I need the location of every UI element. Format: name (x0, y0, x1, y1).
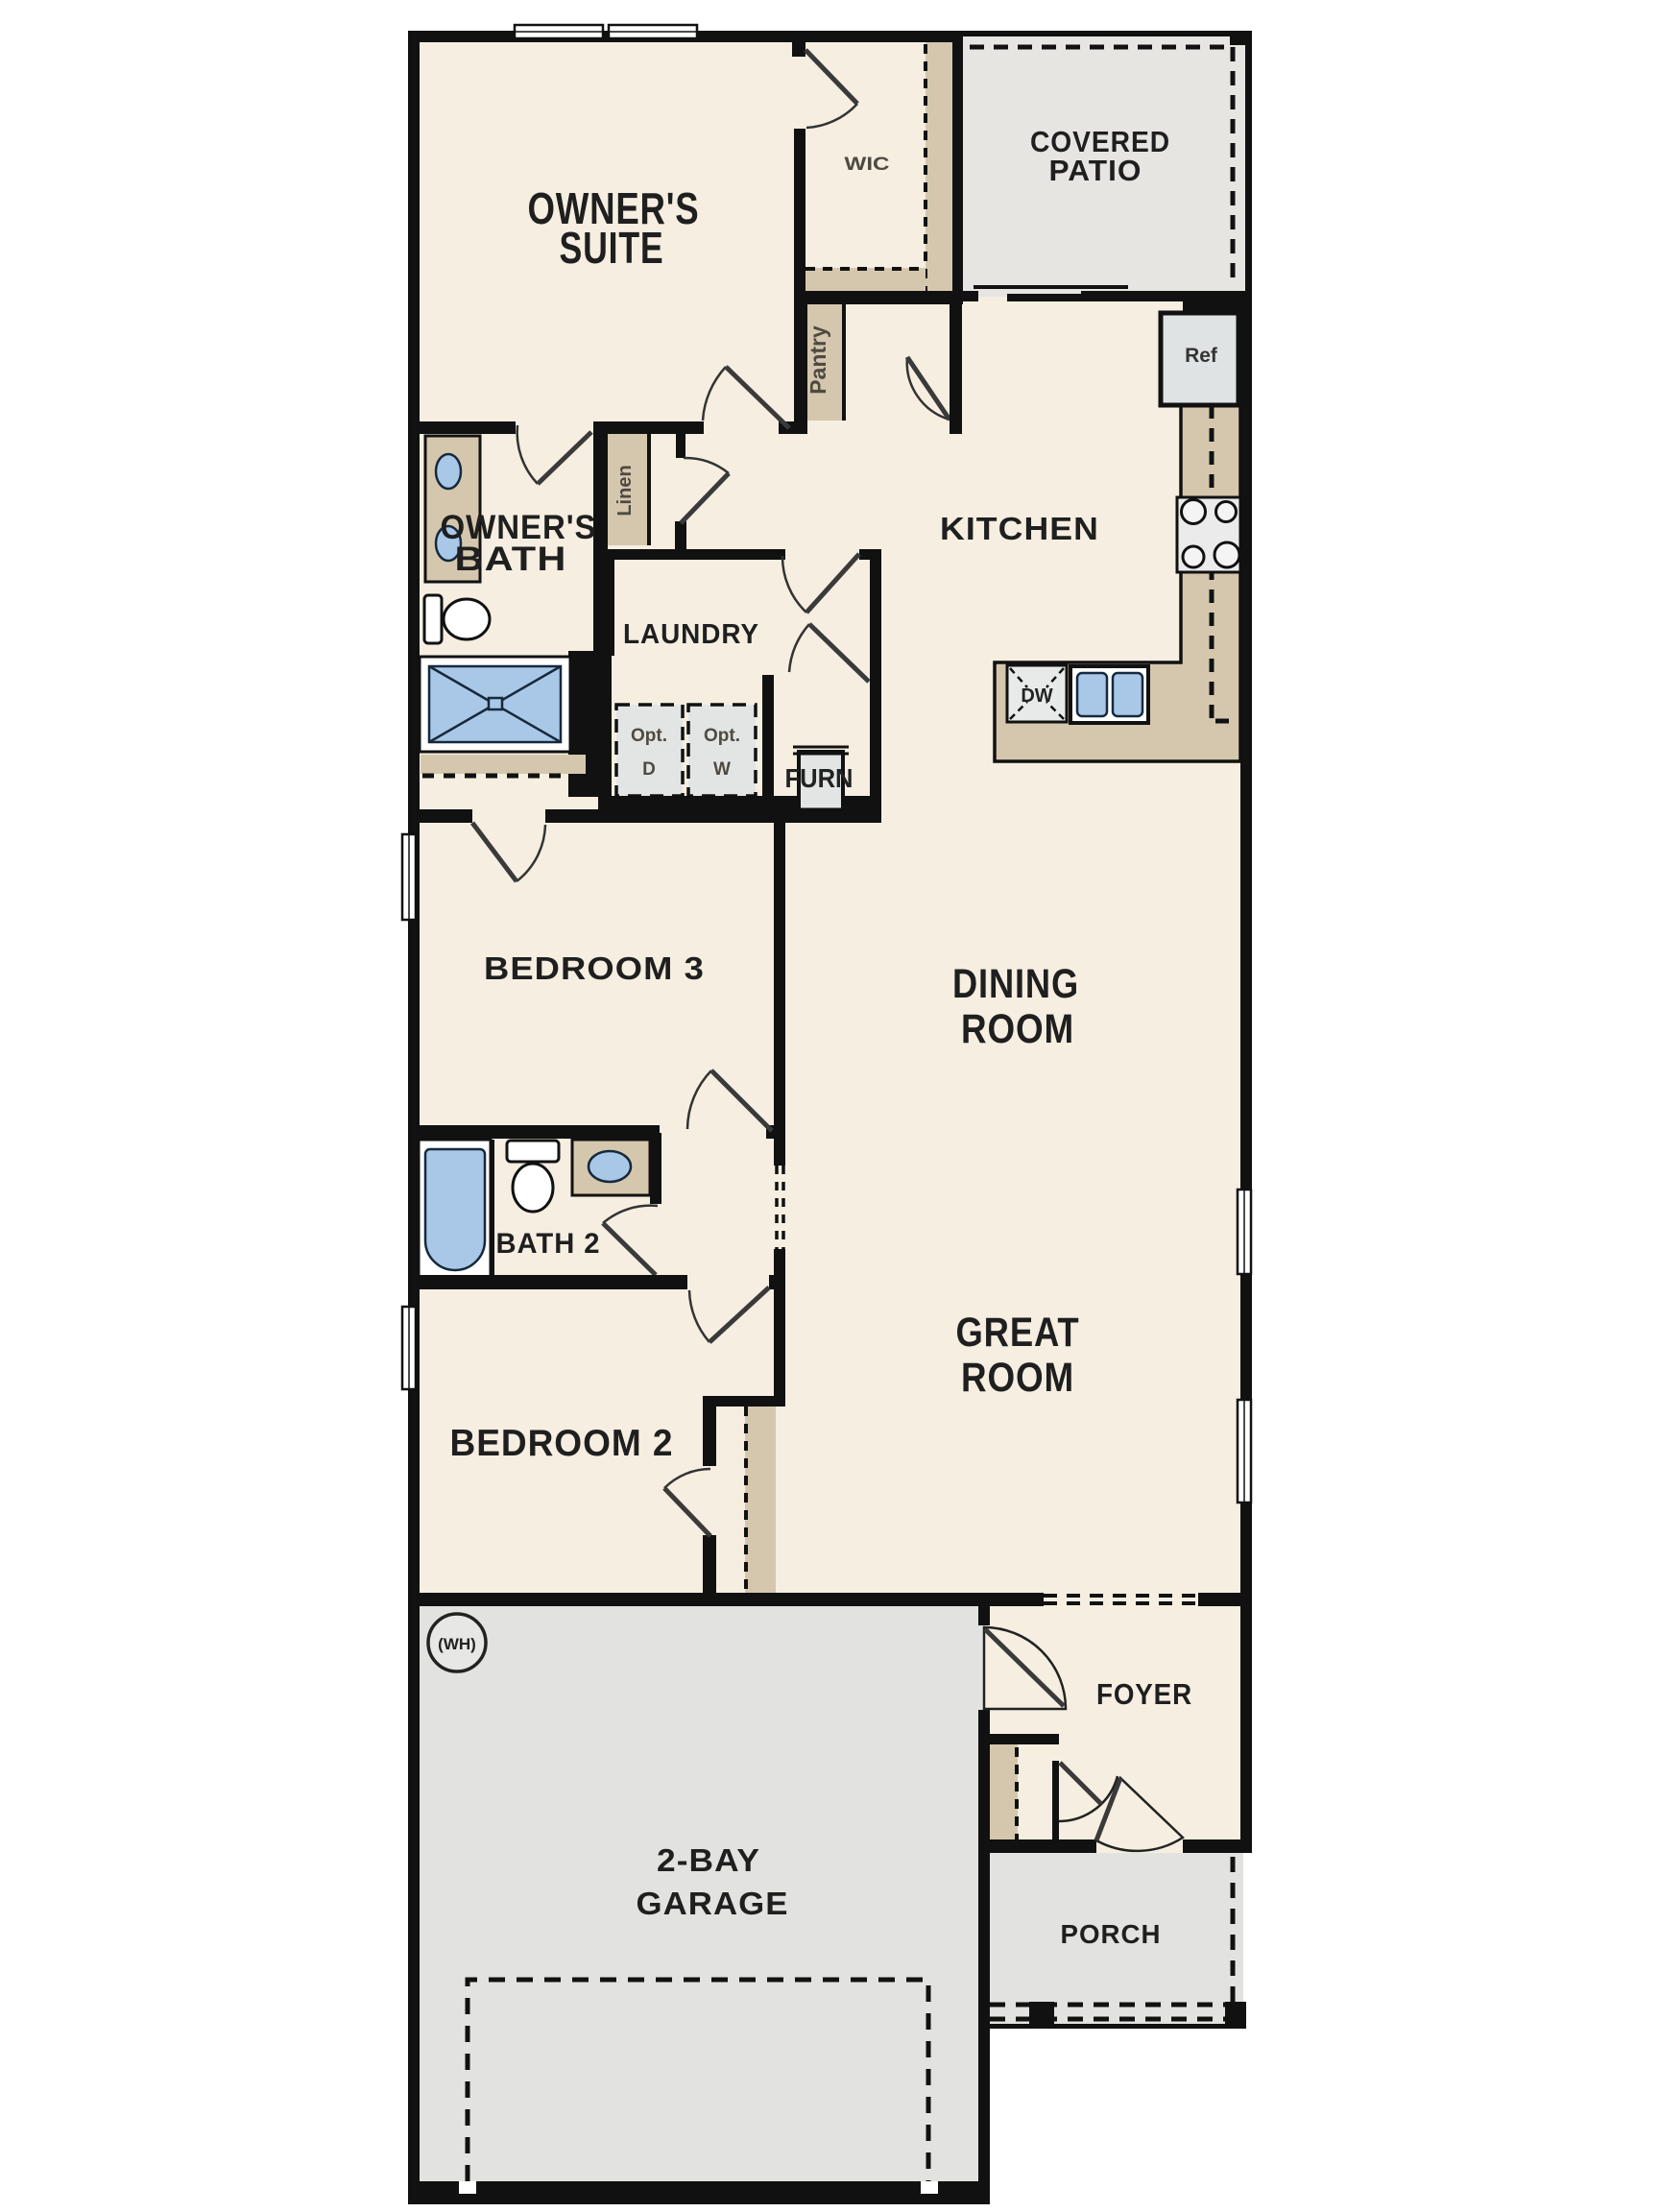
svg-text:Pantry: Pantry (805, 325, 830, 395)
svg-text:ROOM: ROOM (961, 1006, 1074, 1052)
svg-text:DINING: DINING (952, 961, 1079, 1007)
svg-text:BEDROOM 2: BEDROOM 2 (450, 1423, 674, 1464)
svg-text:Ref: Ref (1185, 345, 1218, 367)
svg-text:BATH 2: BATH 2 (496, 1228, 601, 1260)
svg-text:LAUNDRY: LAUNDRY (623, 619, 759, 650)
svg-text:WIC: WIC (845, 155, 890, 175)
svg-text:W: W (713, 759, 731, 780)
svg-text:2-BAY: 2-BAY (657, 1842, 760, 1878)
svg-text:D: D (642, 759, 656, 780)
svg-text:PORCH: PORCH (1061, 1919, 1162, 1949)
svg-text:KITCHEN: KITCHEN (940, 511, 1099, 546)
svg-text:PATIO: PATIO (1049, 154, 1142, 187)
svg-text:(WH): (WH) (438, 1635, 476, 1653)
svg-text:FURN: FURN (785, 763, 854, 793)
svg-text:GREAT: GREAT (956, 1310, 1080, 1356)
svg-text:Opt.: Opt. (704, 726, 740, 746)
svg-text:BEDROOM 3: BEDROOM 3 (484, 950, 705, 986)
svg-text:BATH: BATH (455, 541, 567, 578)
svg-text:ROOM: ROOM (961, 1355, 1074, 1401)
svg-text:Opt.: Opt. (631, 726, 667, 746)
svg-text:DW: DW (1021, 685, 1052, 707)
svg-text:Linen: Linen (614, 465, 636, 516)
svg-text:SUITE: SUITE (560, 223, 664, 273)
svg-text:GARAGE: GARAGE (637, 1886, 789, 1921)
svg-text:FOYER: FOYER (1096, 1677, 1192, 1711)
